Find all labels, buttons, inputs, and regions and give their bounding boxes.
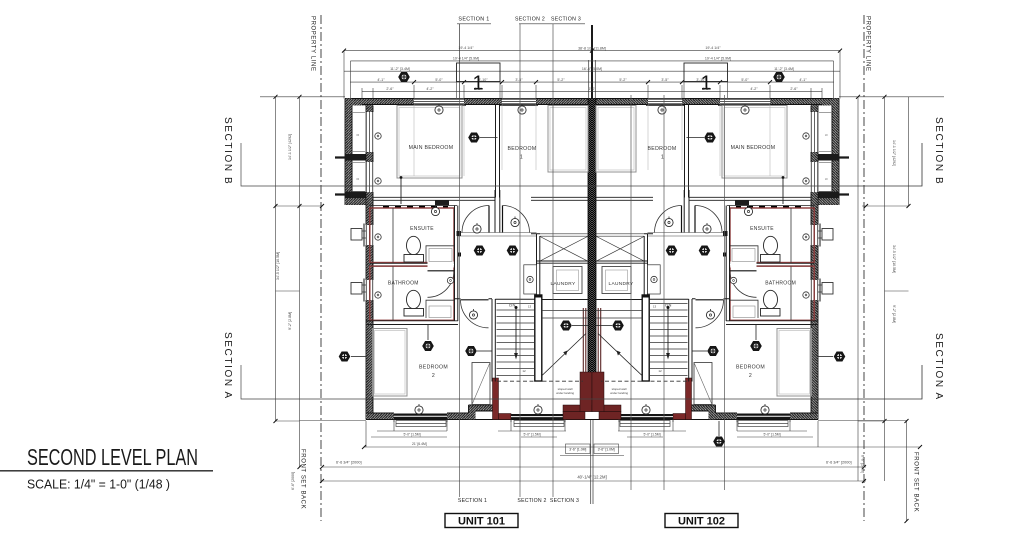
- svg-text:9'-2" [2.8M]: 9'-2" [2.8M]: [892, 305, 896, 323]
- svg-text:1: 1: [661, 155, 664, 161]
- svg-text:5'-0": 5'-0": [435, 78, 443, 82]
- svg-text:under landing: under landing: [610, 391, 629, 395]
- svg-text:SECTION 1: SECTION 1: [458, 498, 487, 504]
- svg-text:0: 0: [824, 134, 828, 136]
- svg-text:LAUNDRY: LAUNDRY: [551, 281, 576, 287]
- svg-text:SECTION 1: SECTION 1: [458, 17, 489, 23]
- svg-text:ENSUITE: ENSUITE: [750, 226, 774, 232]
- svg-text:19'-4 1/4" [5.9M]: 19'-4 1/4" [5.9M]: [453, 57, 479, 61]
- svg-text:SECTION 3: SECTION 3: [551, 17, 581, 23]
- svg-text:6'-6" [2000]: 6'-6" [2000]: [861, 455, 865, 473]
- svg-text:5'-0" [1.5M]: 5'-0" [1.5M]: [523, 432, 540, 436]
- svg-text:MAIN BEDROOM: MAIN BEDROOM: [731, 145, 776, 151]
- svg-text:3'-6" [1.0M]: 3'-6" [1.0M]: [569, 448, 586, 452]
- svg-text:13: 13: [653, 305, 657, 309]
- svg-text:PROPERTY LINE: PROPERTY LINE: [310, 16, 316, 72]
- svg-text:4'-2": 4'-2": [750, 87, 758, 91]
- svg-text:2'-6": 2'-6": [386, 87, 394, 91]
- svg-text:4'-1": 4'-1": [799, 78, 807, 82]
- svg-text:DN: DN: [665, 303, 671, 308]
- svg-text:2: 2: [432, 373, 435, 379]
- svg-text:11'-2" [3.4M]: 11'-2" [3.4M]: [774, 67, 794, 71]
- svg-text:6'-6 3/4" [2000]: 6'-6 3/4" [2000]: [336, 460, 362, 464]
- svg-text:SECTION B: SECTION B: [933, 117, 944, 185]
- svg-text:2'-2": 2'-2": [474, 87, 482, 91]
- svg-text:UNIT 102: UNIT 102: [678, 515, 725, 527]
- svg-text:UNIT 101: UNIT 101: [458, 515, 505, 527]
- svg-text:34'-5 1/2" [10.5M]: 34'-5 1/2" [10.5M]: [892, 245, 896, 273]
- svg-text:SECTION A: SECTION A: [222, 332, 233, 400]
- svg-text:5'-0" [1.5M]: 5'-0" [1.5M]: [763, 432, 780, 436]
- svg-text:BATHROOM: BATHROOM: [765, 280, 796, 286]
- svg-text:SECTION A: SECTION A: [933, 333, 944, 401]
- svg-text:3'-10": 3'-10": [478, 78, 488, 82]
- svg-text:6'-6" [2000]: 6'-6" [2000]: [291, 472, 295, 490]
- svg-text:3'-5": 3'-5": [661, 78, 669, 82]
- svg-text:BATHROOM: BATHROOM: [388, 280, 419, 286]
- svg-text:6'-6 3/4" [2000]: 6'-6 3/4" [2000]: [826, 460, 852, 464]
- svg-text:12: 12: [658, 369, 662, 373]
- svg-text:19'-4 1/4": 19'-4 1/4": [705, 46, 721, 50]
- svg-text:SECOND LEVEL PLAN: SECOND LEVEL PLAN: [27, 444, 198, 470]
- svg-text:38'-8 1/2" [11.8M]: 38'-8 1/2" [11.8M]: [578, 46, 606, 50]
- svg-text:BEDROOM: BEDROOM: [648, 146, 677, 152]
- svg-text:BEDROOM: BEDROOM: [508, 146, 537, 152]
- svg-text:5'-0" [1.5M]: 5'-0" [1.5M]: [403, 432, 420, 436]
- svg-text:1: 1: [520, 155, 523, 161]
- svg-text:2'-2": 2'-2": [702, 87, 710, 91]
- svg-text:SECTION 2: SECTION 2: [517, 498, 546, 504]
- svg-text:19'-4 1/4" [5.9M]: 19'-4 1/4" [5.9M]: [705, 57, 731, 61]
- svg-text:0: 0: [356, 134, 360, 136]
- svg-text:0: 0: [824, 178, 828, 180]
- svg-text:5'-2": 5'-2": [557, 78, 565, 82]
- svg-text:6'-0": 6'-0": [588, 87, 596, 91]
- svg-text:3'-5": 3'-5": [515, 78, 523, 82]
- svg-text:14'-1 1/2" [4292]: 14'-1 1/2" [4292]: [288, 134, 292, 160]
- svg-text:BEDROOM: BEDROOM: [419, 365, 448, 371]
- svg-text:2: 2: [749, 373, 752, 379]
- svg-text:14'-1 1/2" [4292]: 14'-1 1/2" [4292]: [892, 140, 896, 166]
- svg-text:MAIN BEDROOM: MAIN BEDROOM: [409, 145, 454, 151]
- svg-text:11'-2" [3.4M]: 11'-2" [3.4M]: [390, 67, 410, 71]
- svg-text:9'-2" [2.8M]: 9'-2" [2.8M]: [288, 312, 292, 330]
- svg-text:FRONT SET BACK: FRONT SET BACK: [913, 452, 919, 512]
- svg-text:FRONT SET BACK: FRONT SET BACK: [300, 449, 306, 509]
- svg-text:40'-1/4" [12.2M]: 40'-1/4" [12.2M]: [577, 475, 606, 480]
- svg-text:3'-6" [1.0M]: 3'-6" [1.0M]: [598, 448, 615, 452]
- svg-text:0: 0: [356, 178, 360, 180]
- svg-text:SECTION 3: SECTION 3: [550, 498, 579, 504]
- svg-text:2'-6": 2'-6": [790, 87, 798, 91]
- svg-text:16'-4" [5.0M]: 16'-4" [5.0M]: [582, 67, 602, 71]
- svg-text:3'-10": 3'-10": [696, 78, 706, 82]
- svg-text:5'-2": 5'-2": [619, 78, 627, 82]
- svg-text:BEDROOM: BEDROOM: [736, 365, 765, 371]
- svg-text:under landing: under landing: [556, 391, 575, 395]
- svg-text:13: 13: [528, 305, 532, 309]
- svg-text:SECTION B: SECTION B: [222, 117, 233, 185]
- svg-text:5'-0": 5'-0": [741, 78, 749, 82]
- svg-text:LAUNDRY: LAUNDRY: [609, 281, 634, 287]
- svg-text:DN: DN: [509, 303, 515, 308]
- svg-text:21' [6.4M]: 21' [6.4M]: [412, 442, 427, 446]
- svg-text:5'-0" [1.5M]: 5'-0" [1.5M]: [643, 432, 660, 436]
- svg-text:19'-4 1/4": 19'-4 1/4": [458, 46, 474, 50]
- svg-text:SECTION 2: SECTION 2: [515, 17, 545, 23]
- svg-text:PROPERTY LINE: PROPERTY LINE: [865, 16, 871, 72]
- svg-text:12: 12: [522, 369, 526, 373]
- svg-text:4'-1": 4'-1": [377, 78, 385, 82]
- svg-text:ENSUITE: ENSUITE: [410, 226, 434, 232]
- svg-text:34'-5 1/2" [10.5M]: 34'-5 1/2" [10.5M]: [276, 252, 280, 280]
- svg-text:SCALE: 1/4" = 1-0" (1/48 ): SCALE: 1/4" = 1-0" (1/48 ): [27, 478, 170, 492]
- svg-text:4'-2": 4'-2": [426, 87, 434, 91]
